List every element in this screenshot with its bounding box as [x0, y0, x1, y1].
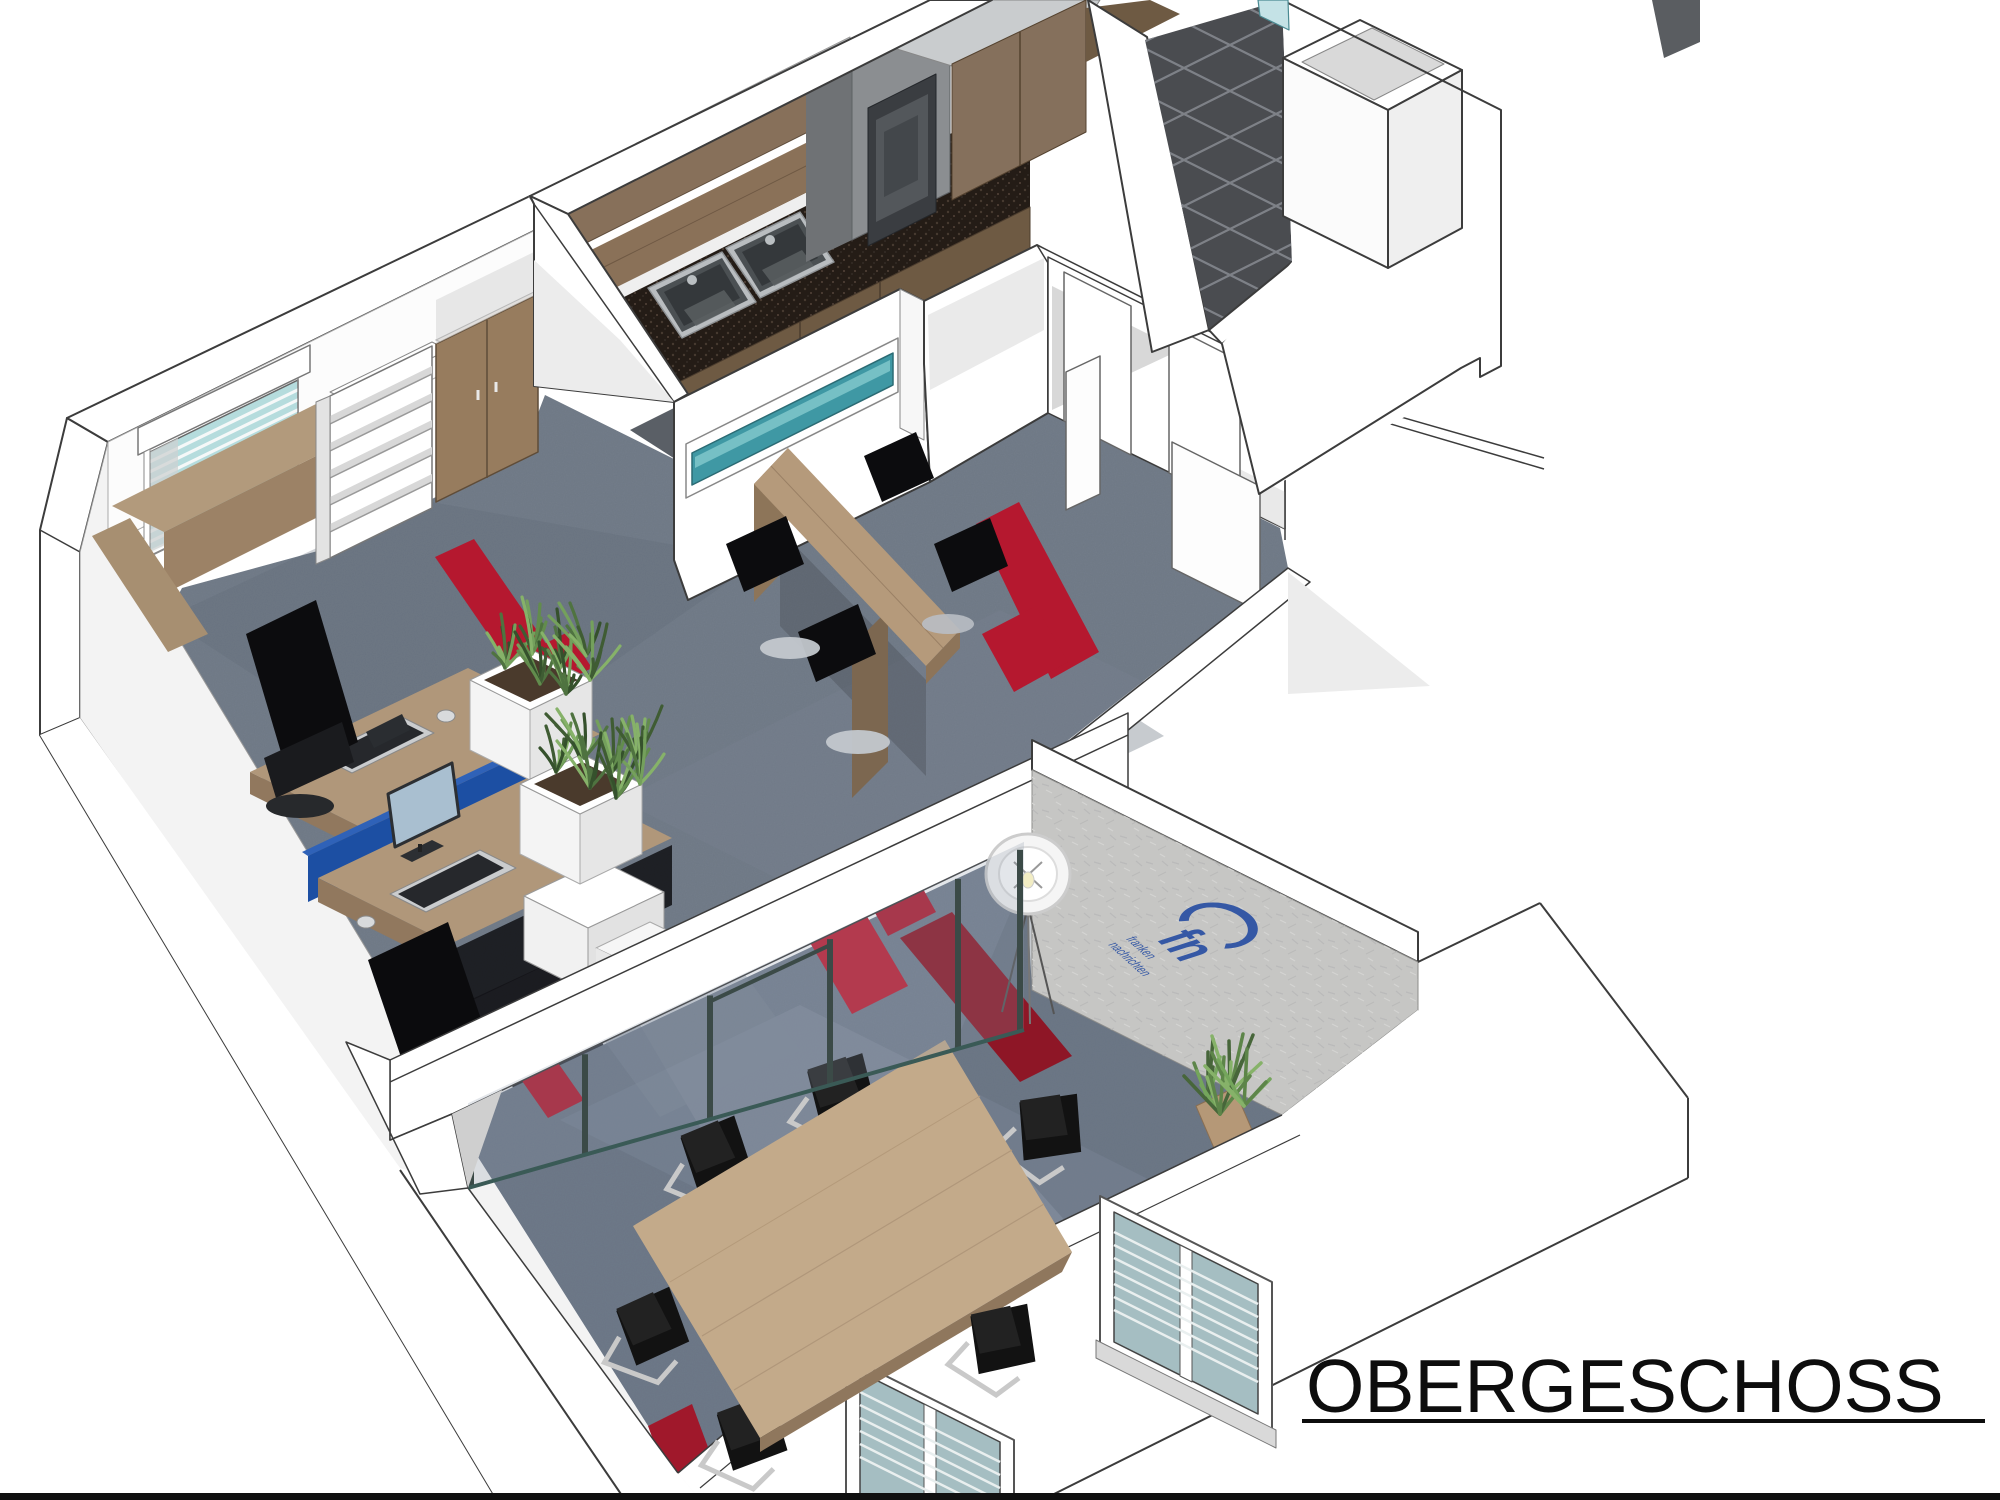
svg-text:OBERGESCHOSS: OBERGESCHOSS — [1306, 1344, 1944, 1428]
